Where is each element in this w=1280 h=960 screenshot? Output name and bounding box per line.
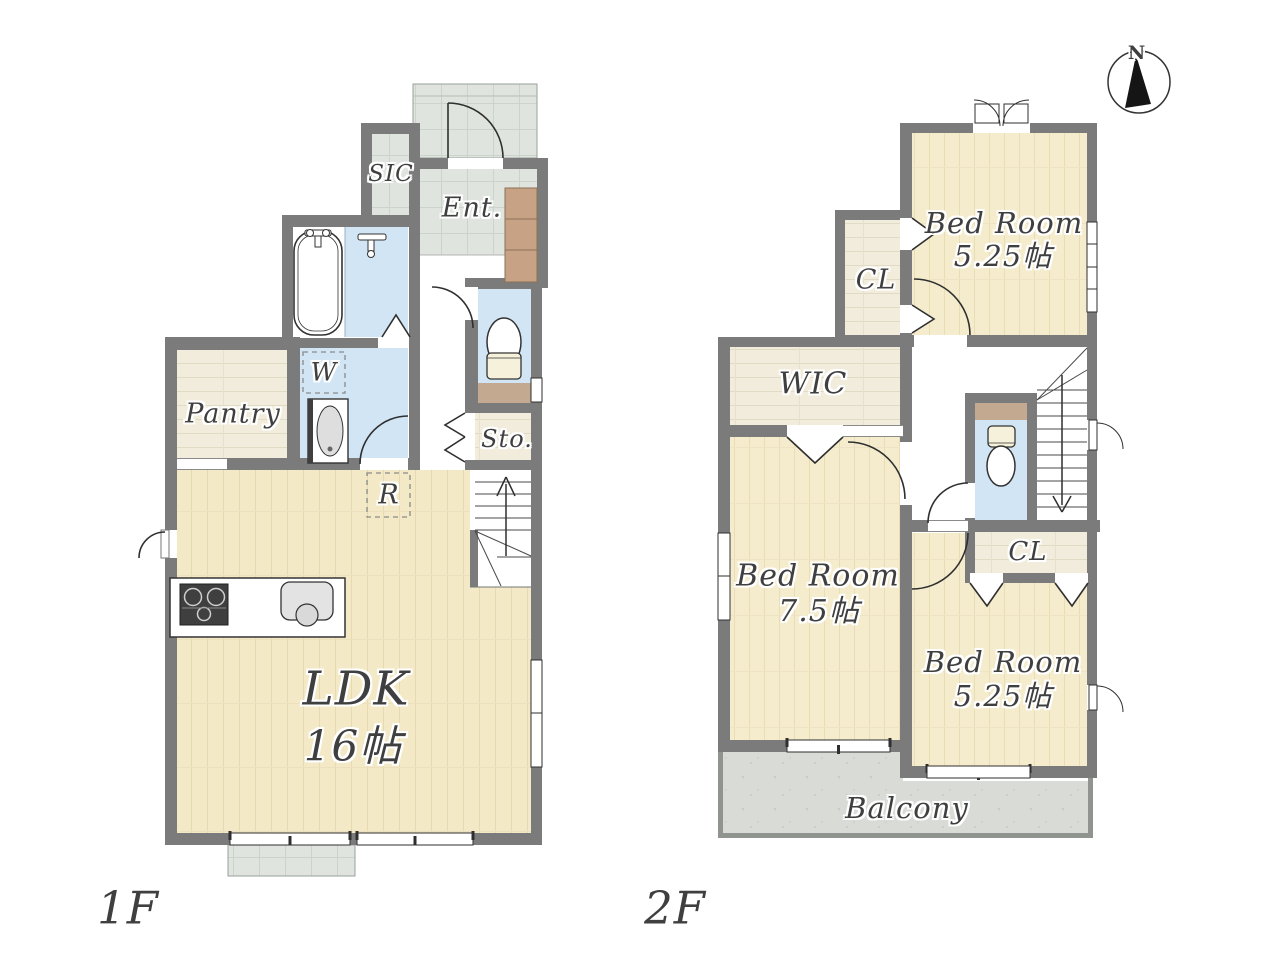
toilet1-window	[531, 378, 542, 402]
balcony-label: Balcony	[845, 791, 969, 825]
sic-label: SIC	[368, 161, 413, 187]
storage-bifold-door	[445, 413, 465, 462]
toilet1-icon	[487, 318, 521, 379]
floorplan-canvas: SIC Ent. Pantry W R Sto. LDK 16帖 1F Bed …	[0, 0, 1280, 960]
washer-label: W	[311, 358, 338, 387]
floor2-fixtures	[987, 426, 1015, 486]
stairs-down	[1037, 348, 1087, 512]
garden-terrace	[228, 845, 355, 876]
ldk-label: LDK	[302, 662, 409, 717]
bedroom-north-top-window	[973, 123, 1030, 133]
floor2-label: 2F	[644, 882, 706, 935]
ldk-size-label: 16帖	[304, 713, 402, 774]
vanity-sink	[308, 399, 348, 463]
bedroom-north-size-label: 5.25帖	[954, 233, 1053, 275]
floor1-label: 1F	[97, 882, 159, 935]
fridge-label: R	[378, 480, 399, 511]
bedroom-south-size-label: 5.25帖	[954, 673, 1053, 715]
compass-north-label: N	[1128, 42, 1146, 64]
toilet1-counter	[478, 383, 531, 403]
wic-label: WIC	[779, 367, 848, 402]
closet-north-label: CL	[856, 265, 897, 296]
shoe-shelf	[505, 188, 537, 282]
entrance-porch	[413, 84, 537, 158]
toilet2-counter	[973, 403, 1027, 420]
bedroom-south-balcony-window	[927, 766, 1030, 778]
bedroom-west-size-label: 7.5帖	[778, 586, 860, 630]
kitchen-sink-icon	[281, 582, 333, 626]
bedroom-south-entry-floor	[912, 533, 965, 588]
bedroom-south-side-window	[1089, 685, 1097, 710]
floorplan-graphics	[0, 0, 1280, 960]
kitchen-island	[170, 578, 345, 637]
toilet2-door-arc	[928, 483, 968, 523]
pantry-label: Pantry	[185, 399, 280, 430]
closet-south-label: CL	[1008, 537, 1047, 567]
entrance-label: Ent.	[442, 193, 503, 224]
toilet2-icon	[987, 426, 1015, 486]
storage-label: Sto.	[481, 425, 533, 453]
stairs-landing-door	[1089, 420, 1097, 450]
stove-icon	[180, 584, 228, 625]
